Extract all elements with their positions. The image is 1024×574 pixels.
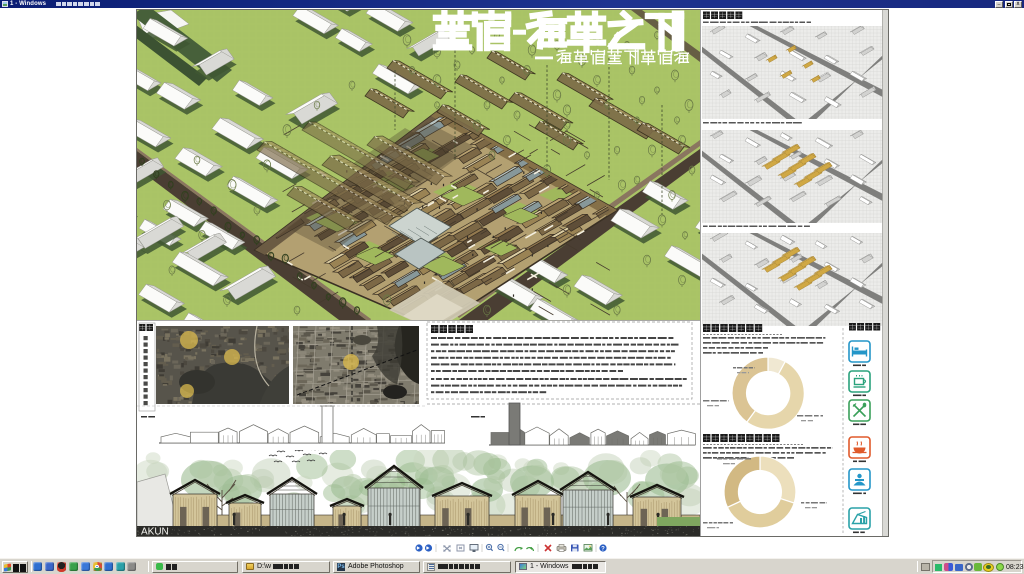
svg-text:?: ? [601, 547, 605, 553]
